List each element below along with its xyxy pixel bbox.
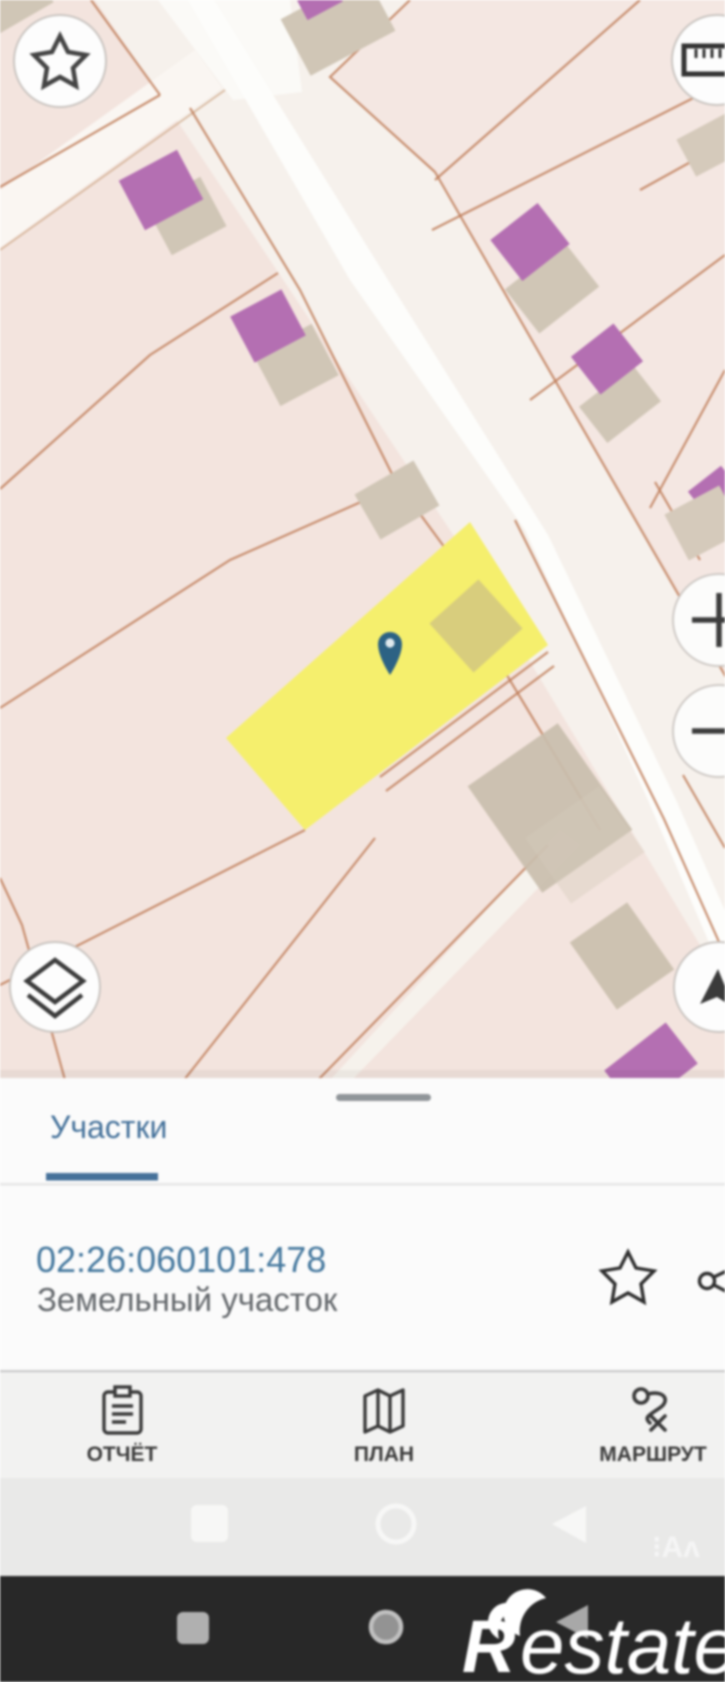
svg-text:ОТЧЁТ: ОТЧЁТ <box>87 1443 158 1466</box>
svg-text:МАРШРУТ: МАРШРУТ <box>599 1443 707 1466</box>
svg-text:estate: estate <box>520 1601 725 1682</box>
svg-text:Участки: Участки <box>50 1109 167 1145</box>
svg-text:ПЛАН: ПЛАН <box>354 1443 414 1466</box>
svg-text:02:26:060101:478: 02:26:060101:478 <box>36 1239 326 1280</box>
svg-text:Земельный участок: Земельный участок <box>37 1281 338 1318</box>
svg-text:⁝Aʌ: ⁝Aʌ <box>652 1531 700 1564</box>
